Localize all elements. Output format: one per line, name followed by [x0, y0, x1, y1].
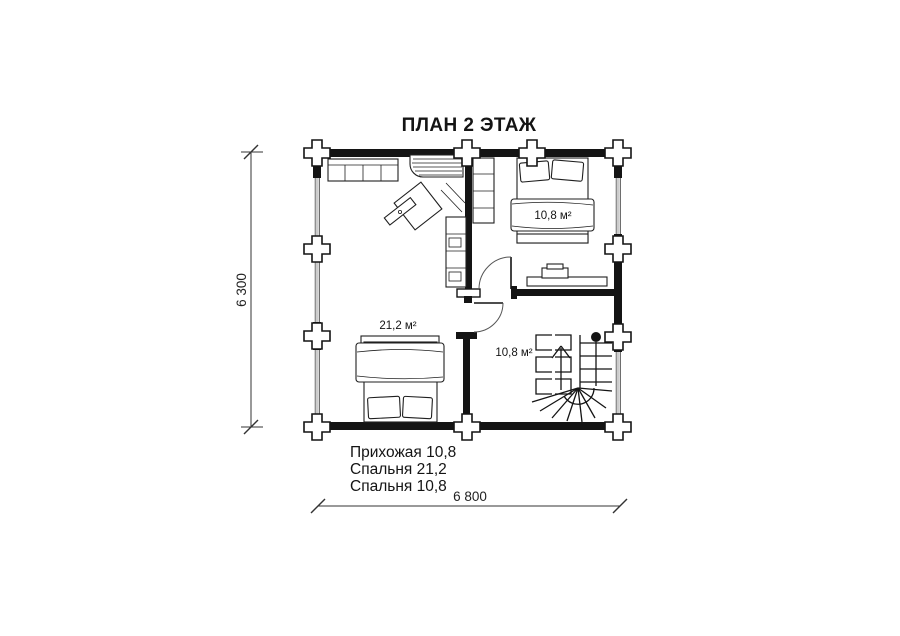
cabinet — [446, 217, 466, 287]
legend-line-hallway: Прихожая 10,8 — [350, 444, 456, 461]
window-icon — [313, 350, 321, 414]
stairs-up-arrow-icon — [552, 346, 570, 390]
door-bedroom-upper — [479, 257, 511, 289]
wardrobe — [473, 158, 494, 223]
floor-plan-page: ПЛАН 2 ЭТАЖ — [0, 0, 900, 636]
door-bedroom-left — [474, 303, 503, 332]
floor-plan-canvas: ПЛАН 2 ЭТАЖ — [0, 0, 900, 636]
room-legend: Прихожая 10,8 Спальня 21,2 Спальня 10,8 — [350, 444, 456, 495]
room-area-label-bedroom-left: 21,2 м² — [379, 320, 416, 332]
room-area-label-bedroom-upper: 10,8 м² — [534, 210, 571, 222]
plan-title: ПЛАН 2 ЭТАЖ — [402, 115, 537, 136]
window-icon — [313, 262, 321, 322]
staircase — [532, 332, 612, 422]
dimension-height-label: 6 300 — [234, 273, 249, 307]
bed-left — [356, 336, 444, 422]
room-area-label-hallway: 10,8 м² — [495, 347, 532, 359]
window-icon — [614, 352, 622, 414]
legend-line-bedroom-large: Спальня 21,2 — [350, 461, 447, 478]
tv-shelf — [527, 264, 607, 286]
dimension-left: 6 300 — [234, 145, 263, 434]
dimension-width-label: 6 800 — [453, 489, 487, 504]
window-icon — [313, 178, 321, 236]
legend-line-bedroom-small: Спальня 10,8 — [350, 478, 447, 495]
sofa — [328, 159, 398, 181]
bed-upper — [511, 158, 594, 243]
window-icon — [614, 178, 622, 234]
newel-post-icon — [591, 332, 601, 342]
